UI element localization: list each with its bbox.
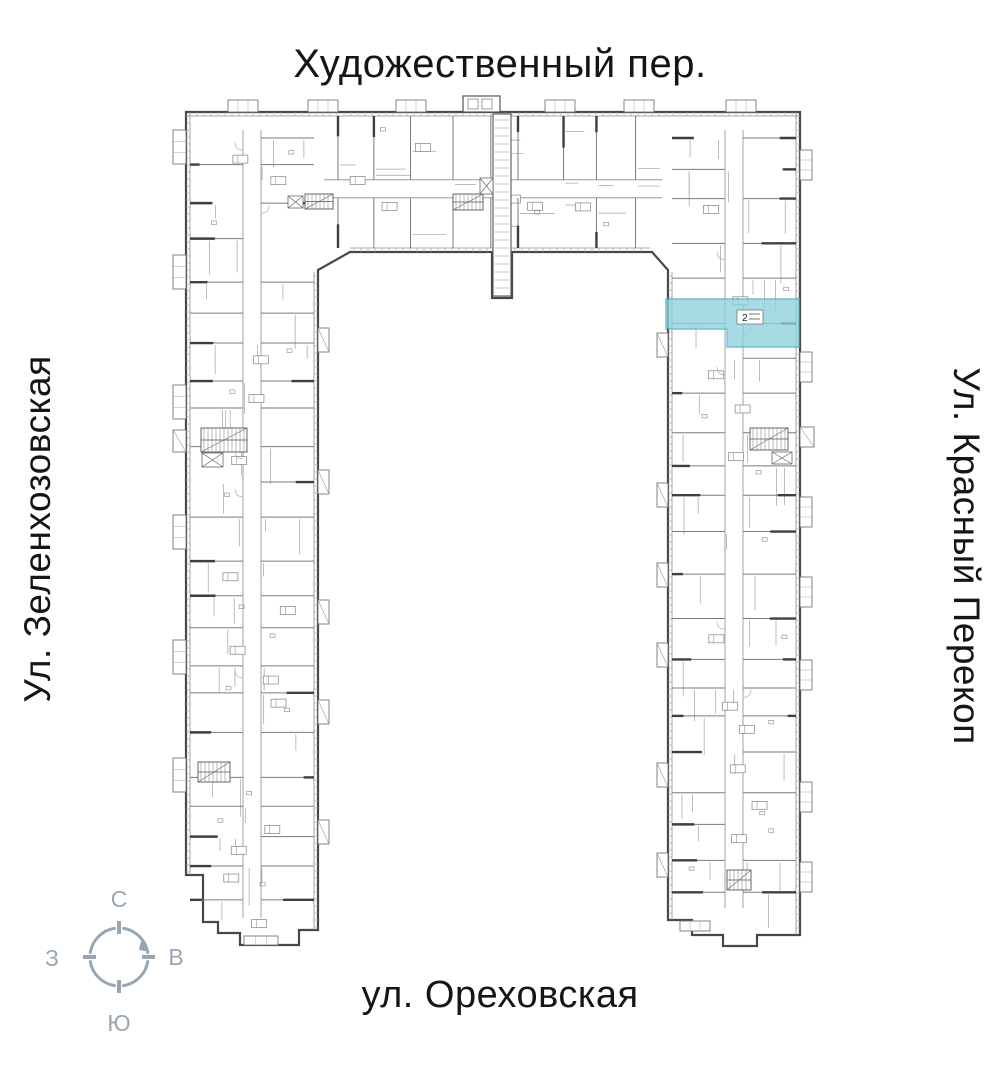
compass-north-label: С bbox=[111, 886, 128, 912]
compass-south-label: Ю bbox=[107, 1010, 130, 1036]
apartment-tag-box bbox=[737, 310, 763, 324]
compass-west-label: З bbox=[45, 945, 59, 971]
site-plan-page: Художественный пер. Ул. Зеленхозовская У… bbox=[0, 0, 1000, 1067]
apartment-tag-rooms: 2 bbox=[742, 313, 748, 324]
compass-east-label: В bbox=[168, 944, 183, 970]
compass: С Ю З В bbox=[20, 880, 220, 1050]
